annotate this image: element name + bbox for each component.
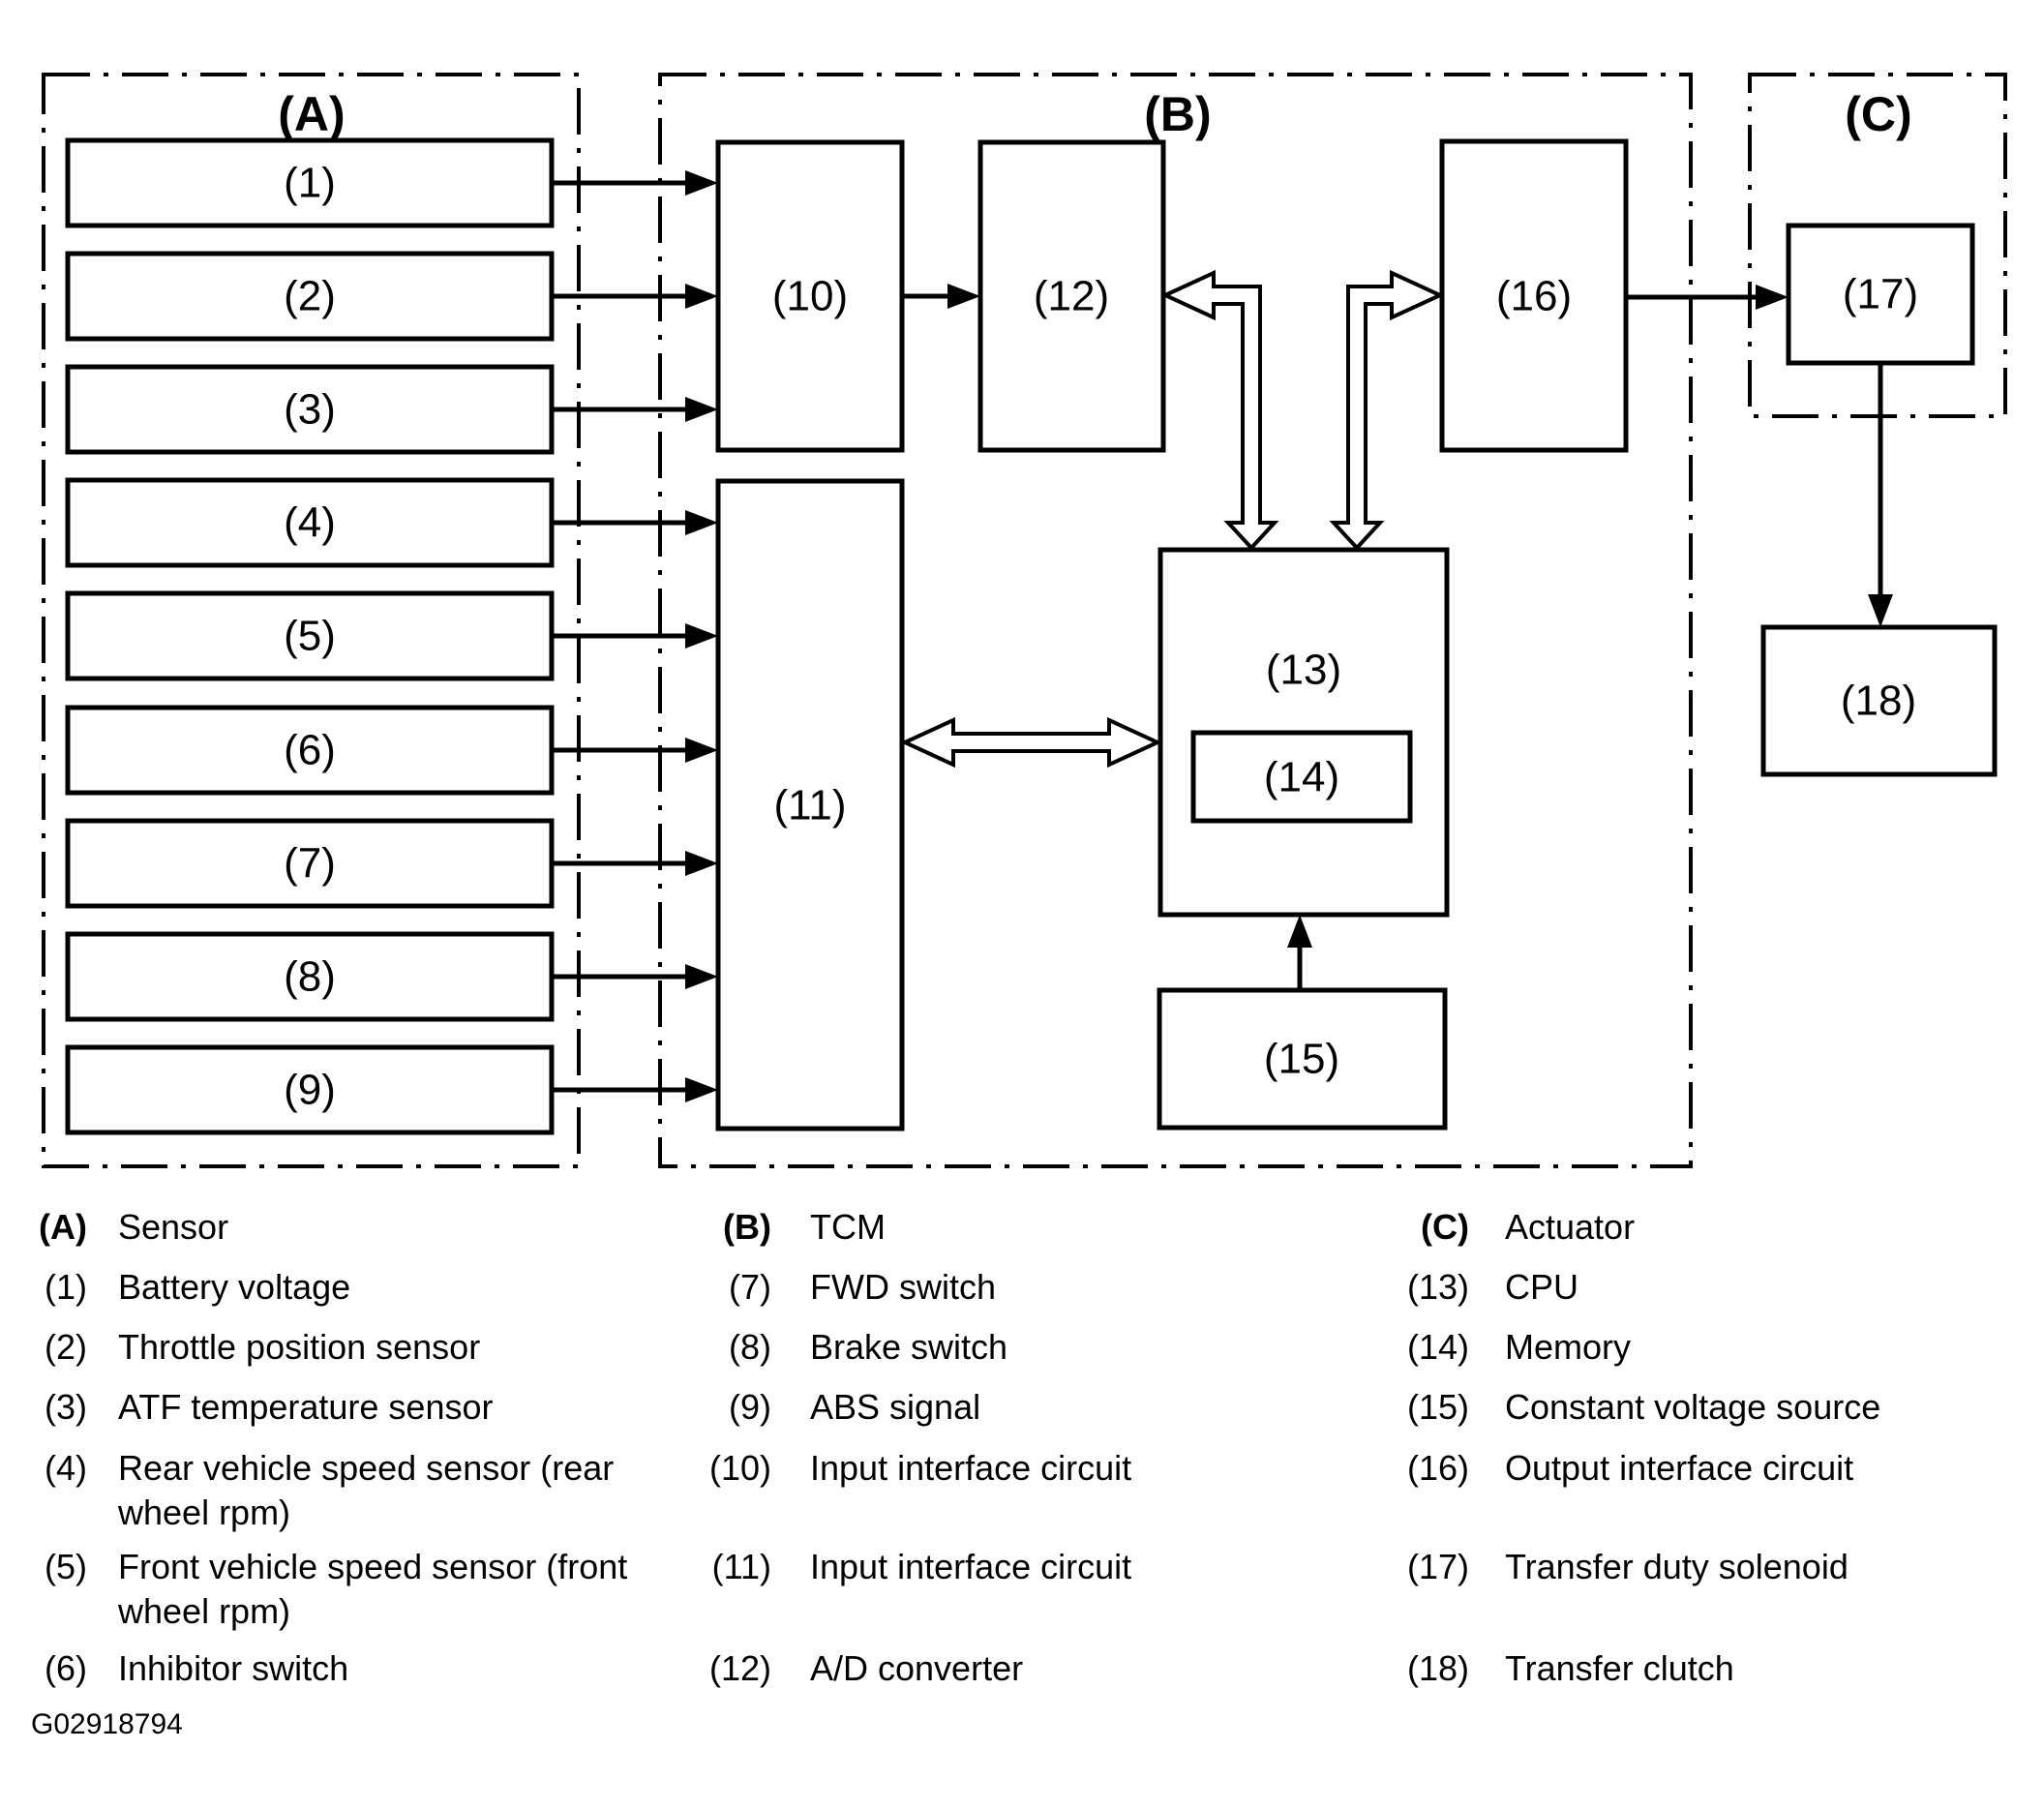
legend-tag-17: (17) [1345, 1545, 1469, 1589]
legend-item-throttle-position-sensor: Throttle position sensor [118, 1325, 480, 1370]
legend-label-tcm: TCM [810, 1205, 886, 1250]
figure-id: G02918794 [31, 1708, 183, 1741]
legend-tag-C: (C) [1345, 1205, 1469, 1250]
legend-tag-6: (6) [0, 1646, 87, 1691]
legend-item-input-interface-11: Input interface circuit [810, 1545, 1131, 1589]
legend-tag-3: (3) [0, 1385, 87, 1430]
legend-tag-2: (2) [0, 1325, 87, 1370]
legend-tag-7: (7) [668, 1265, 771, 1310]
legend: (A) Sensor (1) Battery voltage (2) Throt… [0, 0, 2044, 1810]
legend-tag-8: (8) [668, 1325, 771, 1370]
legend-tag-1: (1) [0, 1265, 87, 1310]
legend-item-input-interface-10: Input interface circuit [810, 1446, 1131, 1491]
legend-item-transfer-duty-solenoid: Transfer duty solenoid [1505, 1545, 1849, 1589]
legend-tag-15: (15) [1345, 1385, 1469, 1430]
legend-label-actuator: Actuator [1505, 1205, 1635, 1250]
legend-item-ad-converter: A/D converter [810, 1646, 1023, 1691]
legend-item-brake-switch: Brake switch [810, 1325, 1007, 1370]
legend-tag-13: (13) [1345, 1265, 1469, 1310]
legend-item-cpu: CPU [1505, 1265, 1578, 1310]
legend-tag-A: (A) [0, 1205, 87, 1250]
legend-item-atf-temperature-sensor: ATF temperature sensor [118, 1385, 493, 1430]
legend-label-sensor: Sensor [118, 1205, 228, 1250]
legend-item-output-interface-circuit: Output interface circuit [1505, 1446, 1853, 1491]
legend-item-front-speed-line2: wheel rpm) [118, 1589, 290, 1634]
legend-tag-4: (4) [0, 1446, 87, 1491]
legend-tag-9: (9) [668, 1385, 771, 1430]
legend-item-abs-signal: ABS signal [810, 1385, 980, 1430]
legend-tag-14: (14) [1345, 1325, 1469, 1370]
legend-item-inhibitor-switch: Inhibitor switch [118, 1646, 348, 1691]
legend-tag-10: (10) [668, 1446, 771, 1491]
legend-item-rear-speed-line2: wheel rpm) [118, 1491, 290, 1535]
legend-item-battery-voltage: Battery voltage [118, 1265, 350, 1310]
legend-item-rear-speed-line1: Rear vehicle speed sensor (rear [118, 1446, 607, 1491]
legend-tag-11: (11) [668, 1545, 771, 1589]
legend-item-fwd-switch: FWD switch [810, 1265, 996, 1310]
legend-tag-5: (5) [0, 1545, 87, 1589]
legend-tag-B: (B) [668, 1205, 771, 1250]
legend-item-memory: Memory [1505, 1325, 1631, 1370]
legend-tag-16: (16) [1345, 1446, 1469, 1491]
legend-item-transfer-clutch: Transfer clutch [1505, 1646, 1734, 1691]
legend-item-constant-voltage-source: Constant voltage source [1505, 1385, 1880, 1430]
legend-item-front-speed-line1: Front vehicle speed sensor (front [118, 1545, 607, 1589]
legend-tag-12: (12) [668, 1646, 771, 1691]
legend-tag-18: (18) [1345, 1646, 1469, 1691]
